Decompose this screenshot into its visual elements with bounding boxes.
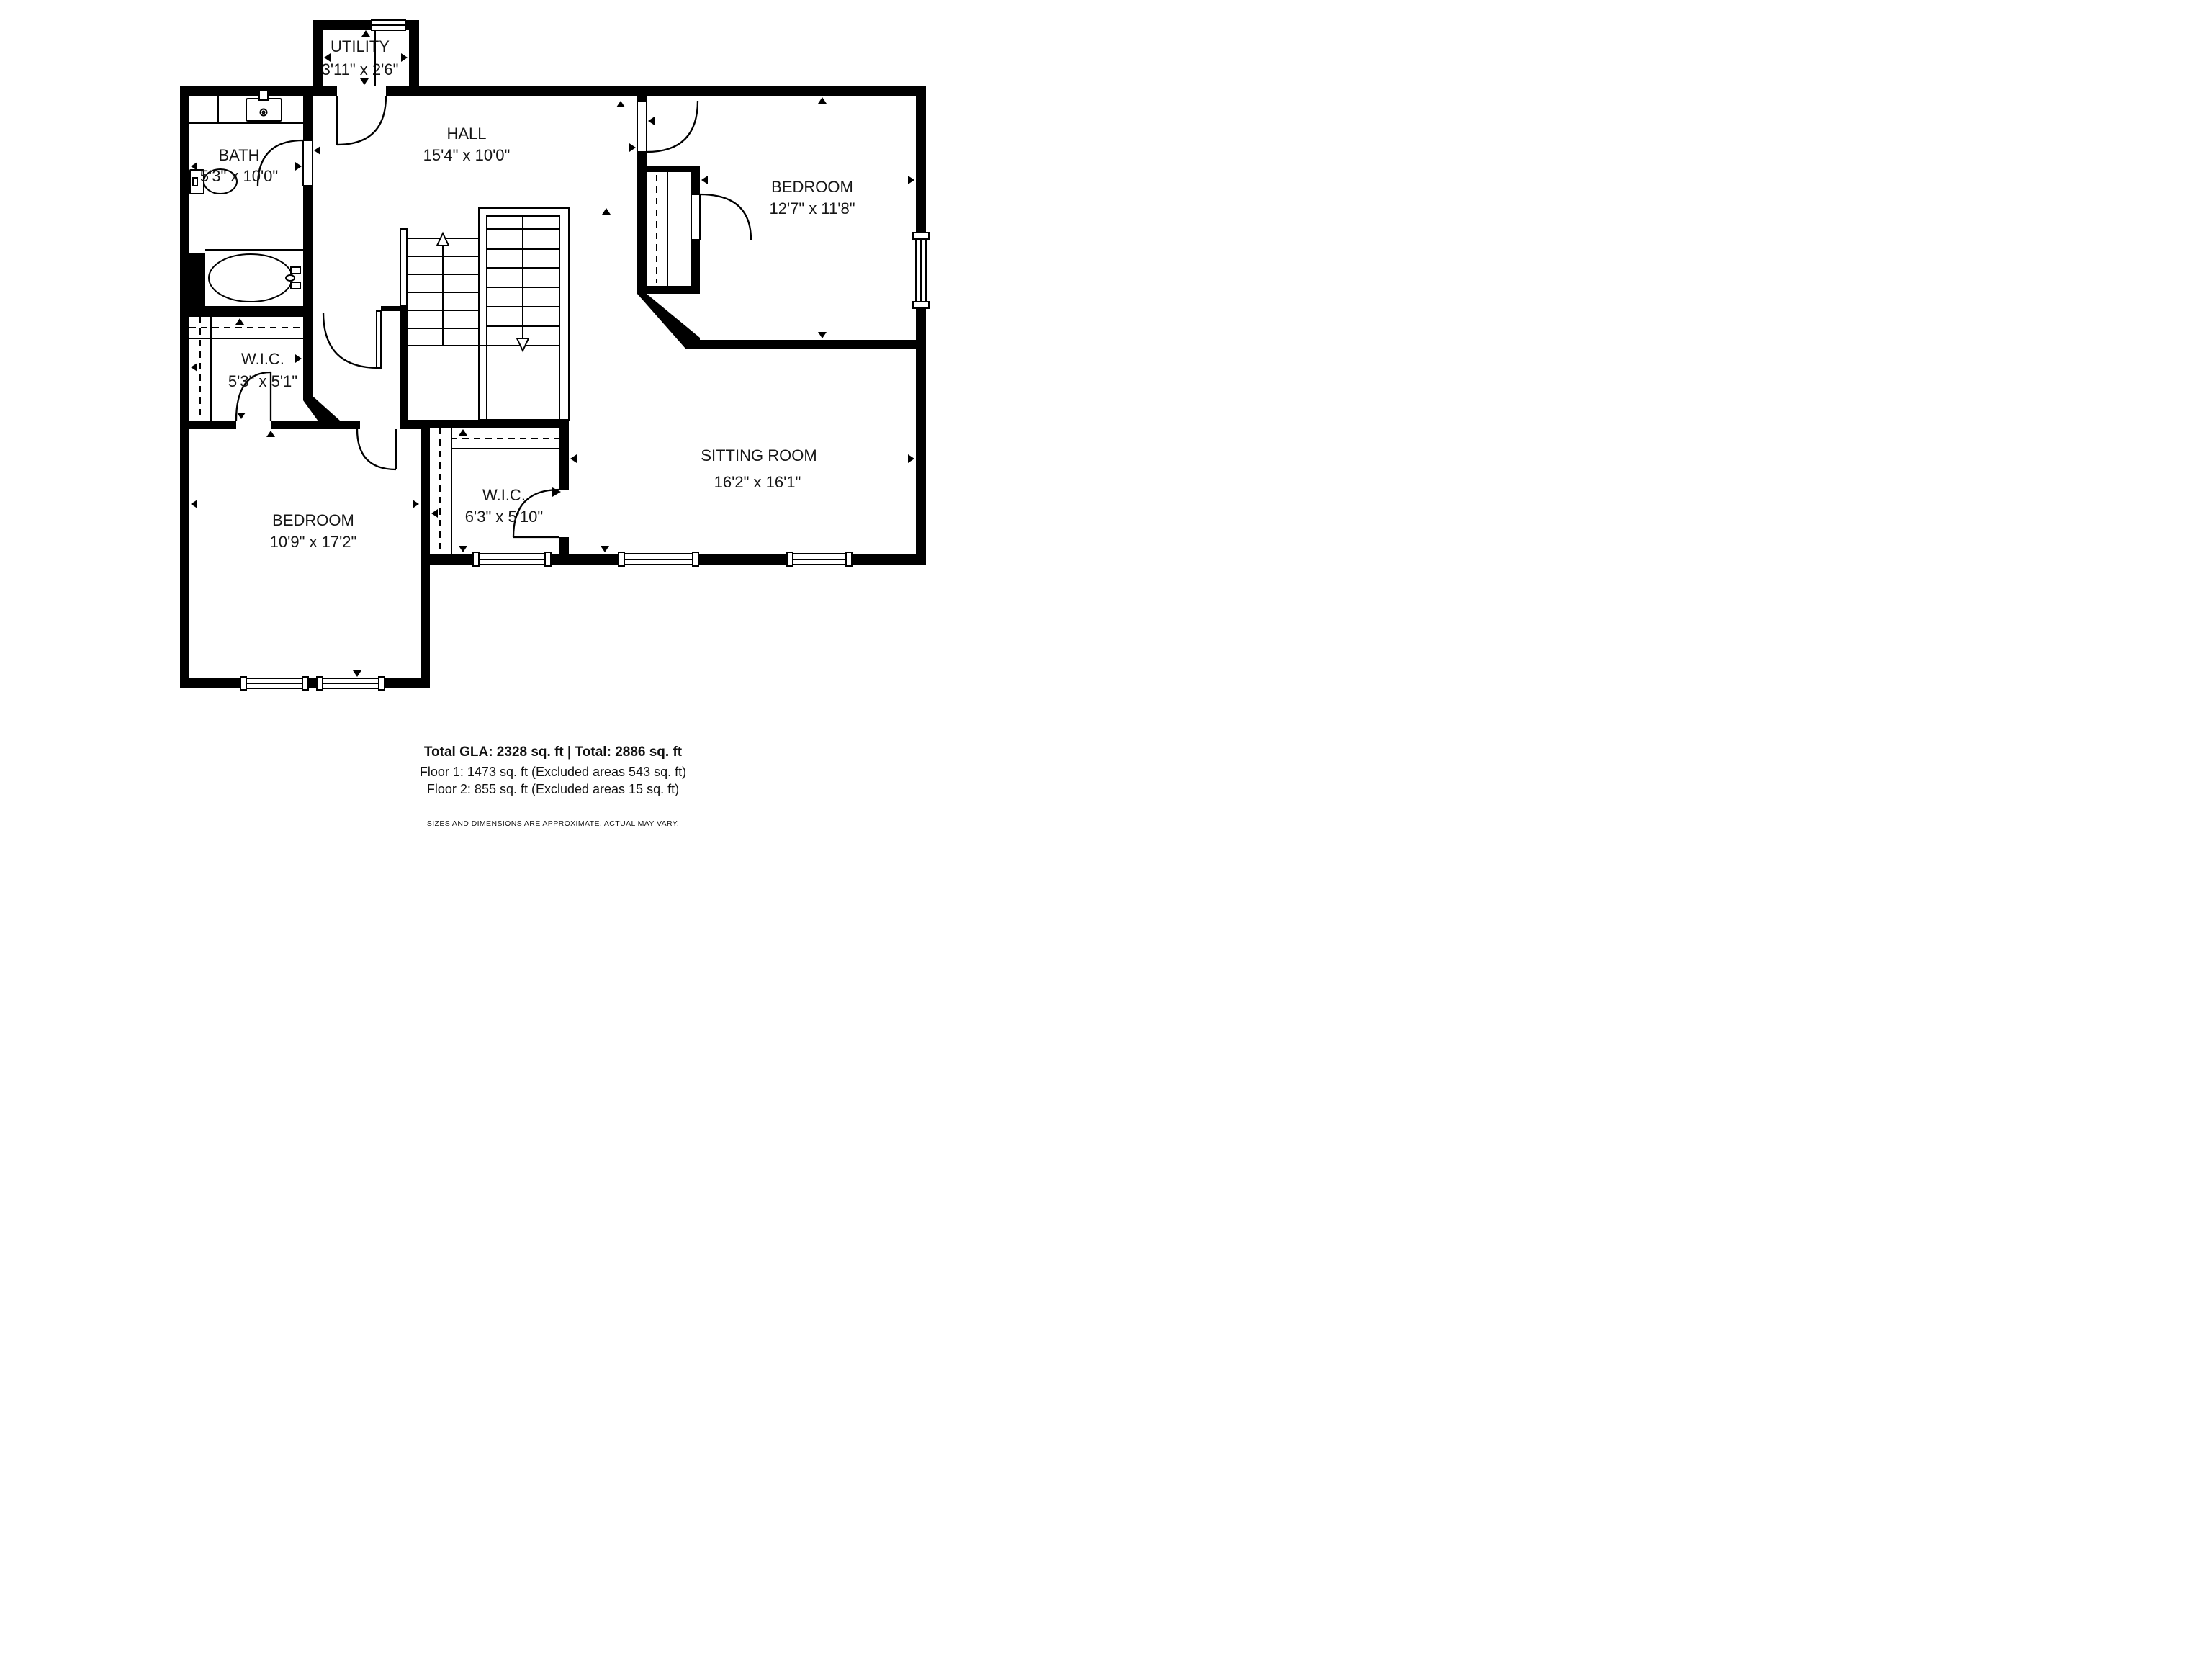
landing-door — [323, 311, 381, 368]
dimension-arrows — [191, 30, 914, 677]
stair-down-arrow-icon — [517, 338, 529, 351]
staircase — [400, 208, 569, 420]
door-arc — [323, 313, 379, 368]
footer-totals: Total GLA: 2328 sq. ft | Total: 2886 sq.… — [424, 745, 683, 760]
stair-handrail-strip — [400, 229, 407, 305]
room-label-hall: HALL — [446, 125, 486, 143]
footer-disclaimer: SIZES AND DIMENSIONS ARE APPROXIMATE, AC… — [427, 819, 679, 828]
window-utility — [372, 20, 405, 30]
dim-arrow-down-icon — [237, 413, 246, 419]
dim-arrow-up-icon — [361, 30, 370, 37]
dim-arrow-up-icon — [616, 101, 625, 107]
wall-bath-notch — [189, 253, 205, 306]
room-dims-sitting-room: 16'2" x 16'1" — [714, 473, 801, 491]
wall-top — [180, 86, 926, 96]
staircase-up-flight — [407, 233, 479, 346]
dim-arrow-right-icon — [401, 53, 408, 62]
dim-arrow-down-icon — [818, 332, 827, 338]
dim-arrow-right-icon — [629, 143, 636, 152]
stair-enclosure-outer — [479, 208, 569, 420]
wic-left-door-gap — [236, 421, 271, 429]
room-label-sitting-room: SITTING ROOM — [701, 446, 817, 464]
wall-stair-nib — [381, 306, 408, 311]
bathtub-icon — [205, 250, 303, 302]
door-leaf — [303, 140, 313, 186]
windows — [240, 20, 929, 690]
dim-arrow-right-icon — [908, 176, 914, 184]
room-label-wic-mid: W.I.C. — [482, 486, 526, 504]
dim-arrow-left-icon — [701, 176, 708, 184]
dim-arrow-down-icon — [360, 78, 369, 85]
door-arc — [647, 101, 698, 152]
room-dims-bedroom-left: 10'9" x 17'2" — [270, 533, 357, 551]
window-sitting-1 — [473, 552, 551, 566]
dim-arrow-up-icon — [459, 429, 467, 436]
wic-left-closet — [189, 317, 303, 421]
room-dims-utility: 3'11" x 2'6" — [322, 60, 399, 78]
window-sitting-2 — [619, 552, 698, 566]
wall-closet-bottom — [637, 286, 700, 294]
room-dims-bedroom-top: 12'7" x 11'8" — [769, 199, 855, 217]
wall-bedroom-left-right — [421, 421, 430, 688]
dim-arrow-up-icon — [235, 318, 244, 325]
dim-arrow-right-icon — [908, 454, 914, 463]
hall-vestibule-door — [637, 101, 698, 152]
dim-arrow-up-icon — [602, 208, 611, 215]
footer-floor1: Floor 1: 1473 sq. ft (Excluded areas 543… — [420, 765, 686, 779]
wall-utility-right — [409, 20, 419, 86]
door-arc — [357, 429, 396, 469]
window-sitting-3 — [787, 552, 852, 566]
staircase-down-flight — [479, 208, 569, 420]
door-arc — [337, 96, 386, 145]
door-leaf — [637, 101, 647, 152]
door-leaf — [377, 311, 381, 368]
dim-arrow-right-icon — [413, 500, 419, 508]
room-dims-hall: 15'4" x 10'0" — [423, 146, 511, 164]
door-leaf — [691, 194, 700, 240]
wall-closet-top — [637, 166, 700, 172]
wall-bath-bottom — [180, 306, 312, 317]
bedroom-left-door-gap — [360, 421, 400, 429]
wall-bedroom-top-bottom — [685, 340, 916, 349]
utility-door — [337, 96, 386, 145]
walls — [180, 20, 926, 688]
window-bedroom-top-right — [913, 233, 929, 308]
room-label-utility: UTILITY — [331, 37, 390, 55]
dim-arrow-left-icon — [191, 500, 197, 508]
room-label-bedroom-top: BEDROOM — [771, 178, 853, 196]
dim-arrow-left-icon — [570, 454, 577, 463]
bedroom-top-closet — [657, 172, 667, 286]
wall-wic-mid-top — [408, 420, 569, 428]
footer-floor2: Floor 2: 855 sq. ft (Excluded areas 15 s… — [427, 782, 679, 796]
wall-left — [180, 86, 189, 688]
room-label-wic-left: W.I.C. — [241, 350, 284, 368]
dim-arrow-left-icon — [648, 117, 655, 125]
dim-arrow-up-icon — [266, 431, 275, 437]
fixtures — [189, 90, 303, 302]
room-dims-wic-left: 5'3" x 5'1" — [228, 372, 297, 390]
bedroom-left-door — [357, 429, 396, 469]
stair-up-arrow-icon — [437, 233, 449, 246]
window-bedroom-left-1 — [240, 677, 308, 690]
utility-door-gap — [337, 86, 386, 96]
floor-plan: UTILITY 3'11" x 2'6" HALL 15'4" x 10'0" … — [0, 0, 1106, 829]
wic-mid-door-gap — [559, 490, 569, 537]
room-label-bath: BATH — [218, 146, 259, 164]
door-arc — [700, 194, 751, 240]
room-dims-wic-mid: 6'3" x 5'10" — [465, 508, 543, 526]
dim-arrow-right-icon — [295, 354, 302, 363]
wall-right — [916, 86, 926, 565]
bedroom-top-door — [691, 194, 751, 240]
dim-arrow-down-icon — [459, 546, 467, 552]
room-dims-bath: 5'3" x 10'0" — [200, 167, 278, 185]
dim-arrow-down-icon — [353, 670, 361, 677]
dim-arrow-down-icon — [601, 546, 609, 552]
window-bedroom-left-2 — [317, 677, 385, 690]
dim-arrow-left-icon — [191, 363, 197, 372]
footer: Total GLA: 2328 sq. ft | Total: 2886 sq.… — [420, 745, 686, 828]
dim-arrow-right-icon — [295, 162, 302, 171]
dim-arrow-up-icon — [818, 97, 827, 104]
room-label-bedroom-left: BEDROOM — [272, 511, 354, 529]
dim-arrow-left-icon — [314, 146, 320, 155]
room-labels: UTILITY 3'11" x 2'6" HALL 15'4" x 10'0" … — [200, 37, 855, 551]
dim-arrow-left-icon — [431, 509, 438, 518]
